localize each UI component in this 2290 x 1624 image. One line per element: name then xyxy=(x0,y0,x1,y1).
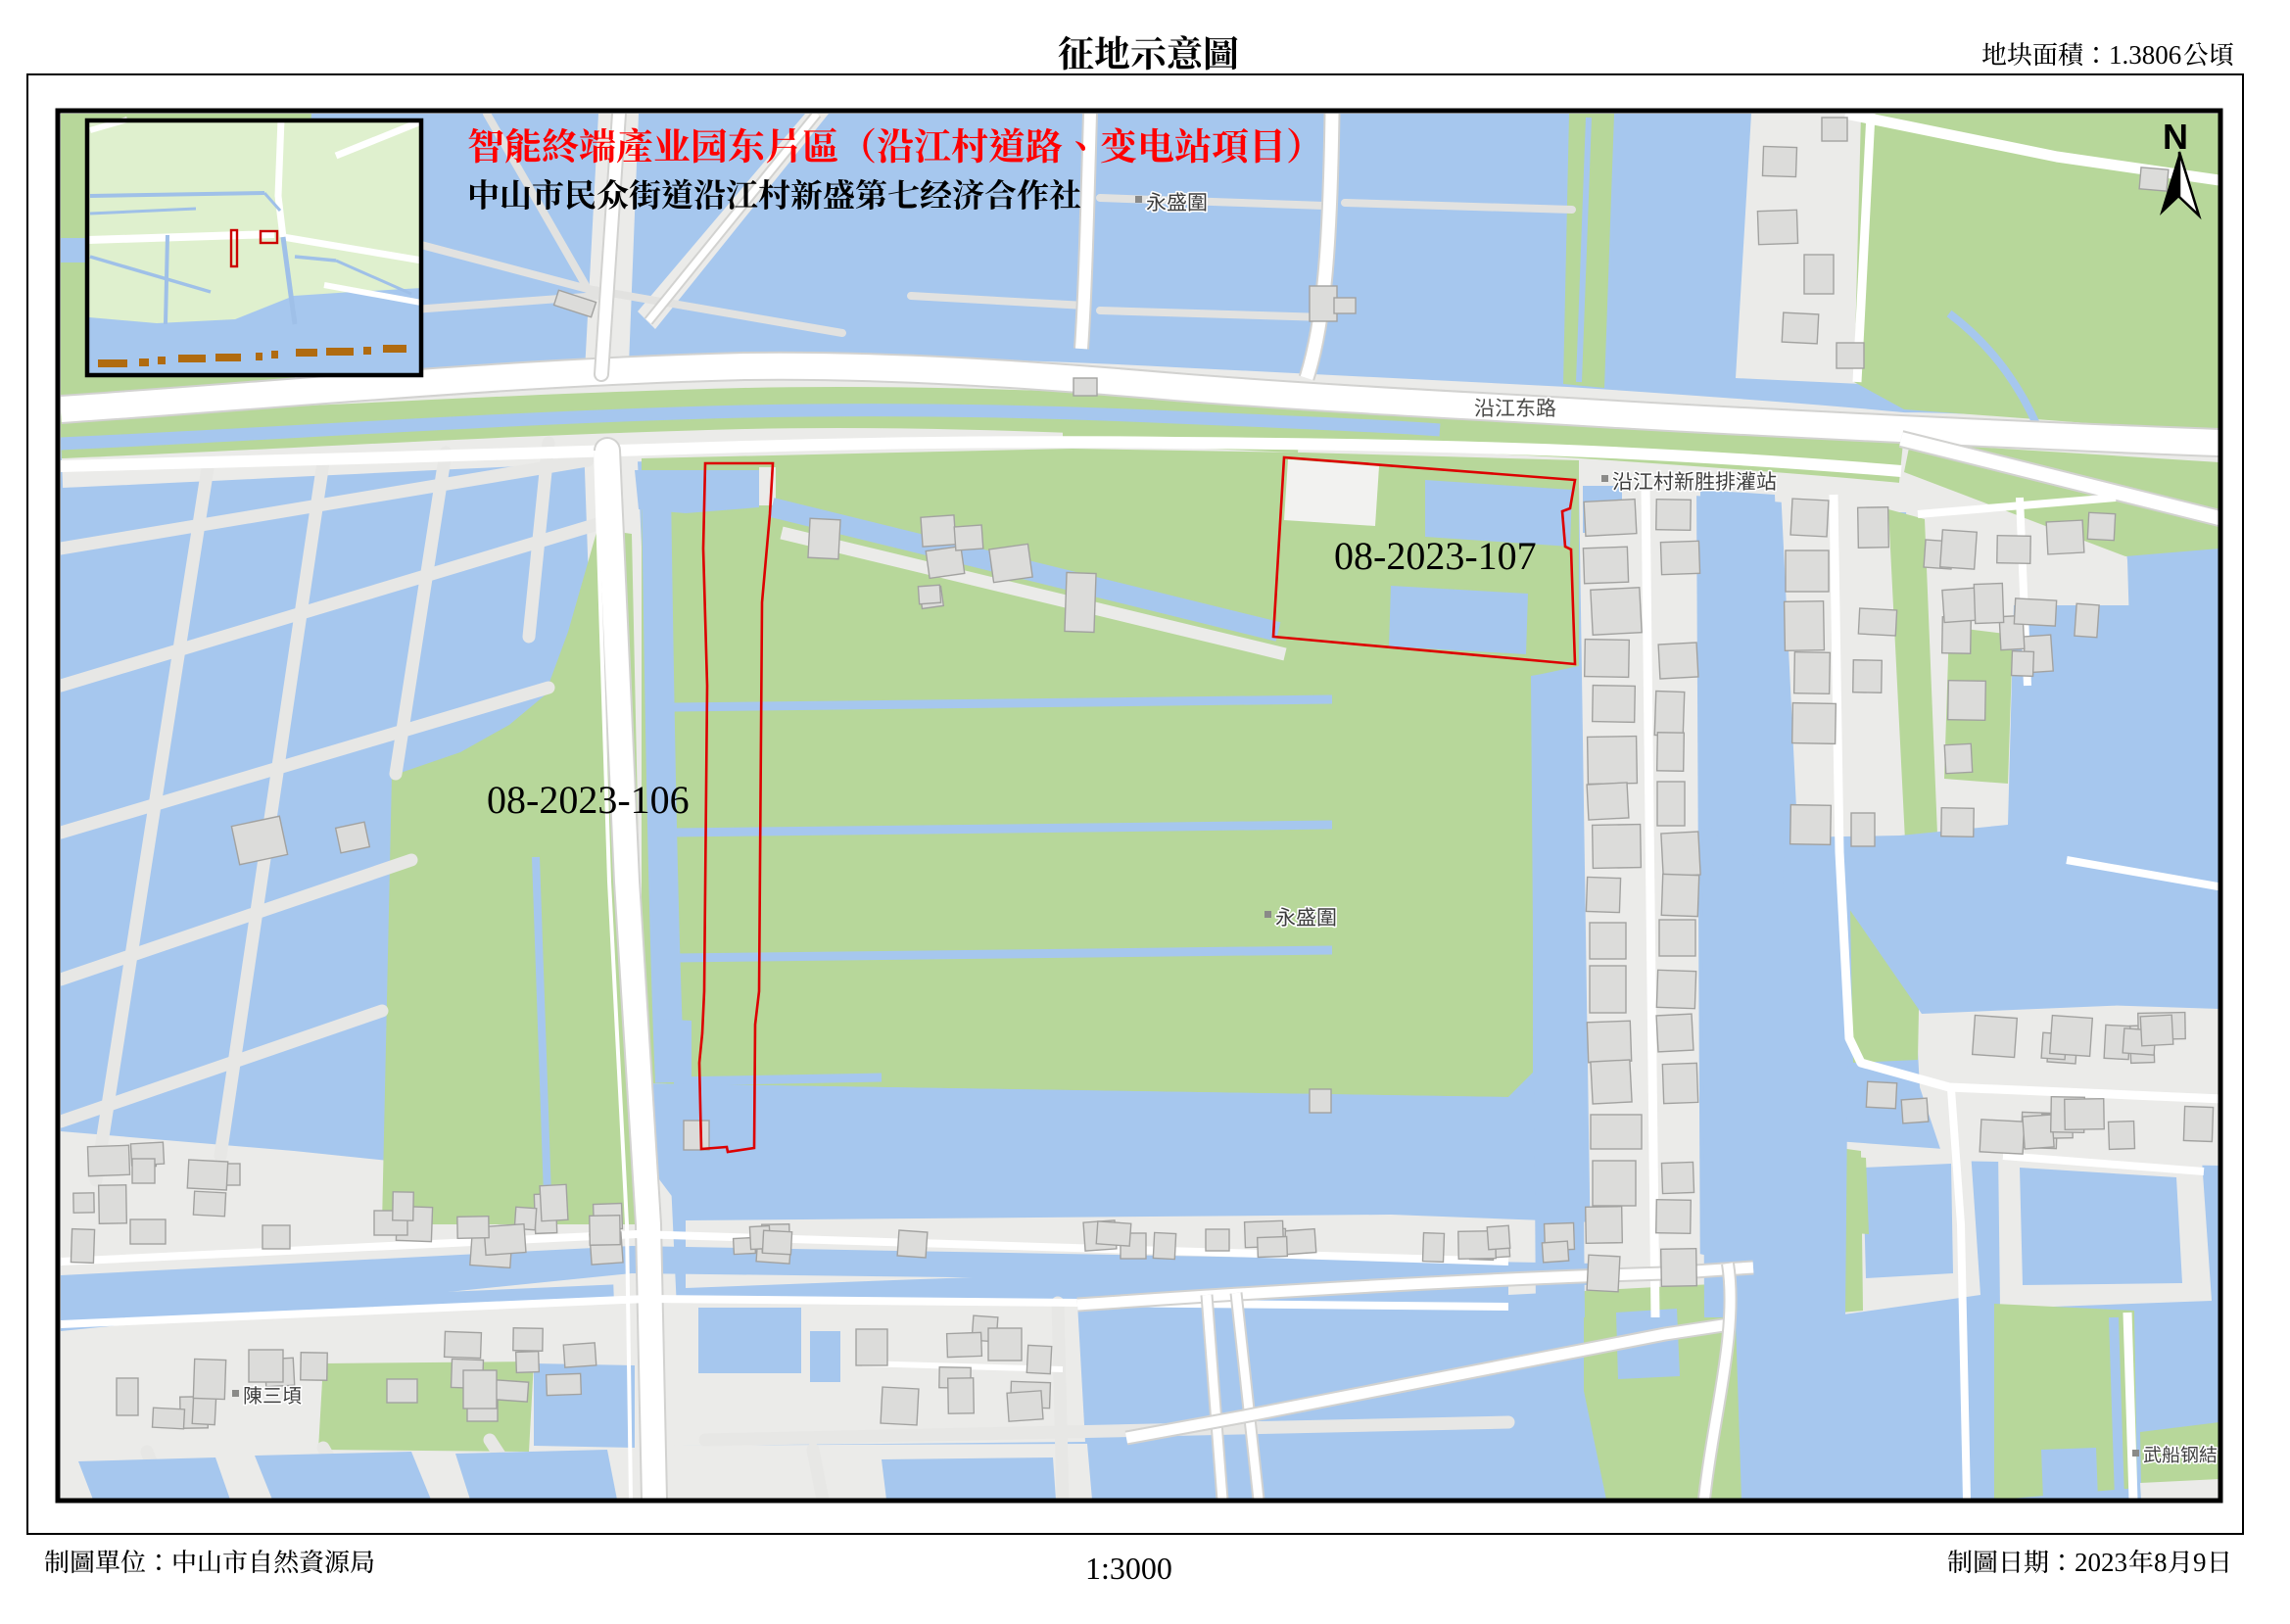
svg-text:1.3806: 1.3806 xyxy=(2109,40,2181,70)
svg-text:08-2023-106: 08-2023-106 xyxy=(487,778,690,822)
svg-text:N: N xyxy=(2163,117,2188,157)
svg-text:8: 8 xyxy=(2154,1548,2168,1577)
svg-text:1:3000: 1:3000 xyxy=(1085,1551,1172,1586)
svg-text:08-2023-107: 08-2023-107 xyxy=(1334,534,1537,578)
svg-text:9: 9 xyxy=(2193,1548,2207,1577)
svg-text:2023: 2023 xyxy=(2075,1548,2127,1577)
